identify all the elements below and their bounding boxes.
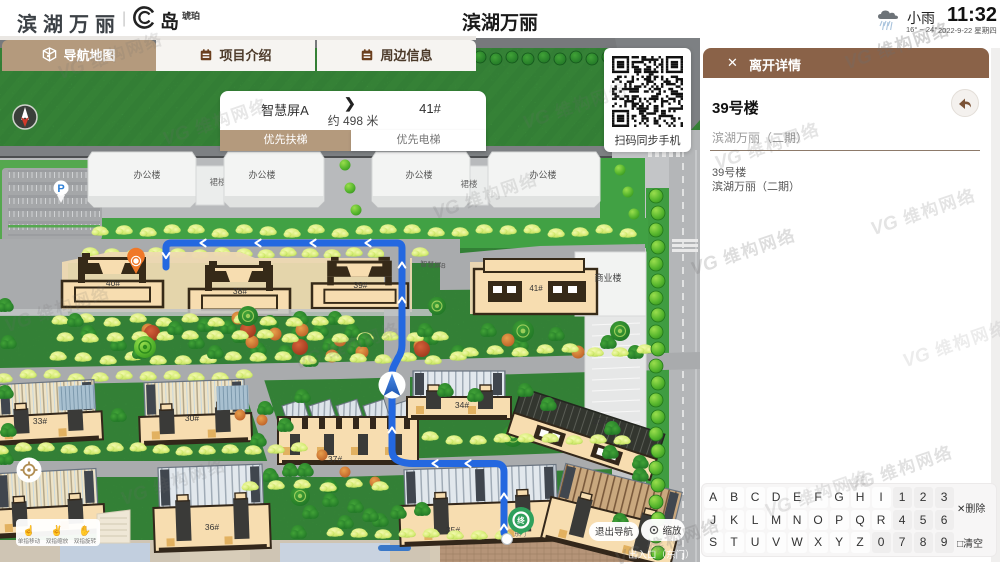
svg-text:退出导航: 退出导航	[595, 526, 634, 538]
svg-text:☝: ☝	[23, 524, 35, 537]
svg-text:办公楼: 办公楼	[529, 169, 556, 180]
svg-text:办公楼: 办公楼	[405, 169, 432, 180]
svg-text:33#: 33#	[33, 416, 47, 426]
svg-text:32#: 32#	[593, 416, 607, 426]
svg-text:30#: 30#	[185, 413, 199, 423]
svg-text:✌: ✌	[51, 524, 63, 537]
svg-text:终: 终	[516, 515, 525, 525]
svg-text:P: P	[57, 183, 64, 195]
svg-text:38#: 38#	[233, 286, 247, 296]
svg-text:40#: 40#	[106, 278, 120, 288]
svg-text:办公楼: 办公楼	[248, 169, 275, 180]
svg-text:36#: 36#	[205, 522, 219, 532]
svg-text:商业楼: 商业楼	[594, 272, 621, 283]
svg-text:39#: 39#	[353, 280, 367, 290]
svg-text:办公楼: 办公楼	[133, 169, 160, 180]
svg-text:34#: 34#	[455, 400, 469, 410]
svg-text:双指缩放: 双指缩放	[46, 537, 69, 545]
svg-text:裙楼: 裙楼	[460, 179, 478, 189]
svg-text:缩放: 缩放	[662, 525, 682, 537]
svg-text:37#: 37#	[328, 454, 342, 464]
svg-text:双指旋转: 双指旋转	[74, 537, 97, 545]
svg-text:✋: ✋	[79, 524, 91, 537]
svg-text:出入口（东门）: 出入口（东门）	[628, 549, 695, 561]
svg-text:41#: 41#	[529, 284, 543, 293]
svg-text:单指移动: 单指移动	[18, 537, 41, 545]
